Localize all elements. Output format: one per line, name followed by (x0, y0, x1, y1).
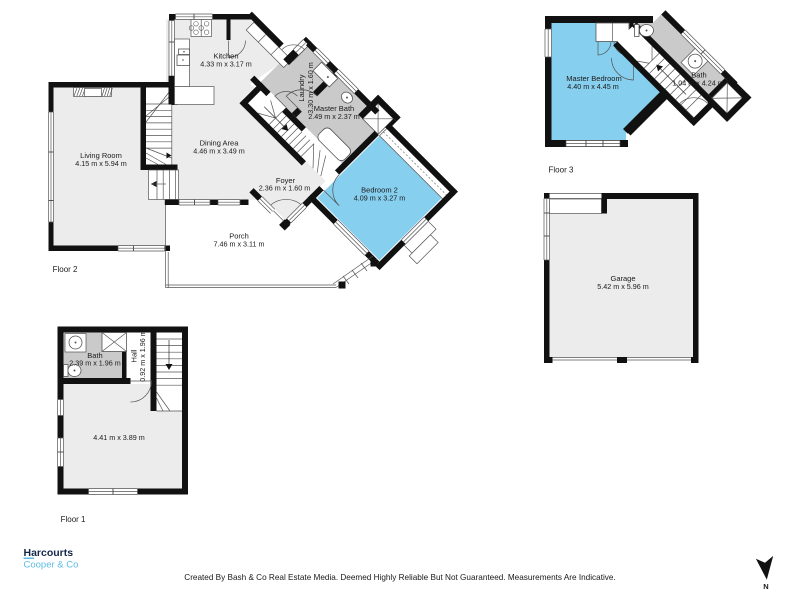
svg-text:Created By Bash & Co Real Esta: Created By Bash & Co Real Estate Media. … (184, 573, 615, 582)
svg-text:Floor 2: Floor 2 (53, 265, 78, 274)
svg-text:Cooper & Co: Cooper & Co (24, 560, 79, 571)
svg-text:0.92 m x 1.96 m: 0.92 m x 1.96 m (138, 330, 147, 382)
svg-text:1.04 m x 4.24 m: 1.04 m x 4.24 m (672, 79, 724, 88)
svg-text:4.09 m x 3.27 m: 4.09 m x 3.27 m (354, 194, 406, 203)
svg-text:Harcourts: Harcourts (24, 547, 74, 559)
svg-text:2.36 m x 1.60 m: 2.36 m x 1.60 m (259, 184, 311, 193)
svg-text:Floor 1: Floor 1 (61, 515, 86, 524)
svg-text:4.46 m x 3.49 m: 4.46 m x 3.49 m (193, 147, 245, 156)
svg-text:N: N (763, 582, 768, 591)
svg-text:2.49 m x 2.37 m: 2.49 m x 2.37 m (308, 112, 360, 121)
svg-text:5.42 m x 5.96 m: 5.42 m x 5.96 m (597, 282, 649, 291)
svg-text:Laundry: Laundry (297, 74, 306, 101)
svg-text:4.15 m x 5.94 m: 4.15 m x 5.94 m (75, 159, 127, 168)
svg-text:Floor 3: Floor 3 (549, 166, 574, 175)
svg-text:4.41 m x 3.89 m: 4.41 m x 3.89 m (93, 433, 145, 442)
svg-text:2.39 m x 1.96 m: 2.39 m x 1.96 m (69, 359, 121, 368)
svg-text:4.33 m x 3.17 m: 4.33 m x 3.17 m (200, 60, 252, 69)
svg-text:7.46 m x 3.11 m: 7.46 m x 3.11 m (214, 240, 265, 249)
svg-text:4.40 m x 4.45 m: 4.40 m x 4.45 m (567, 82, 619, 91)
